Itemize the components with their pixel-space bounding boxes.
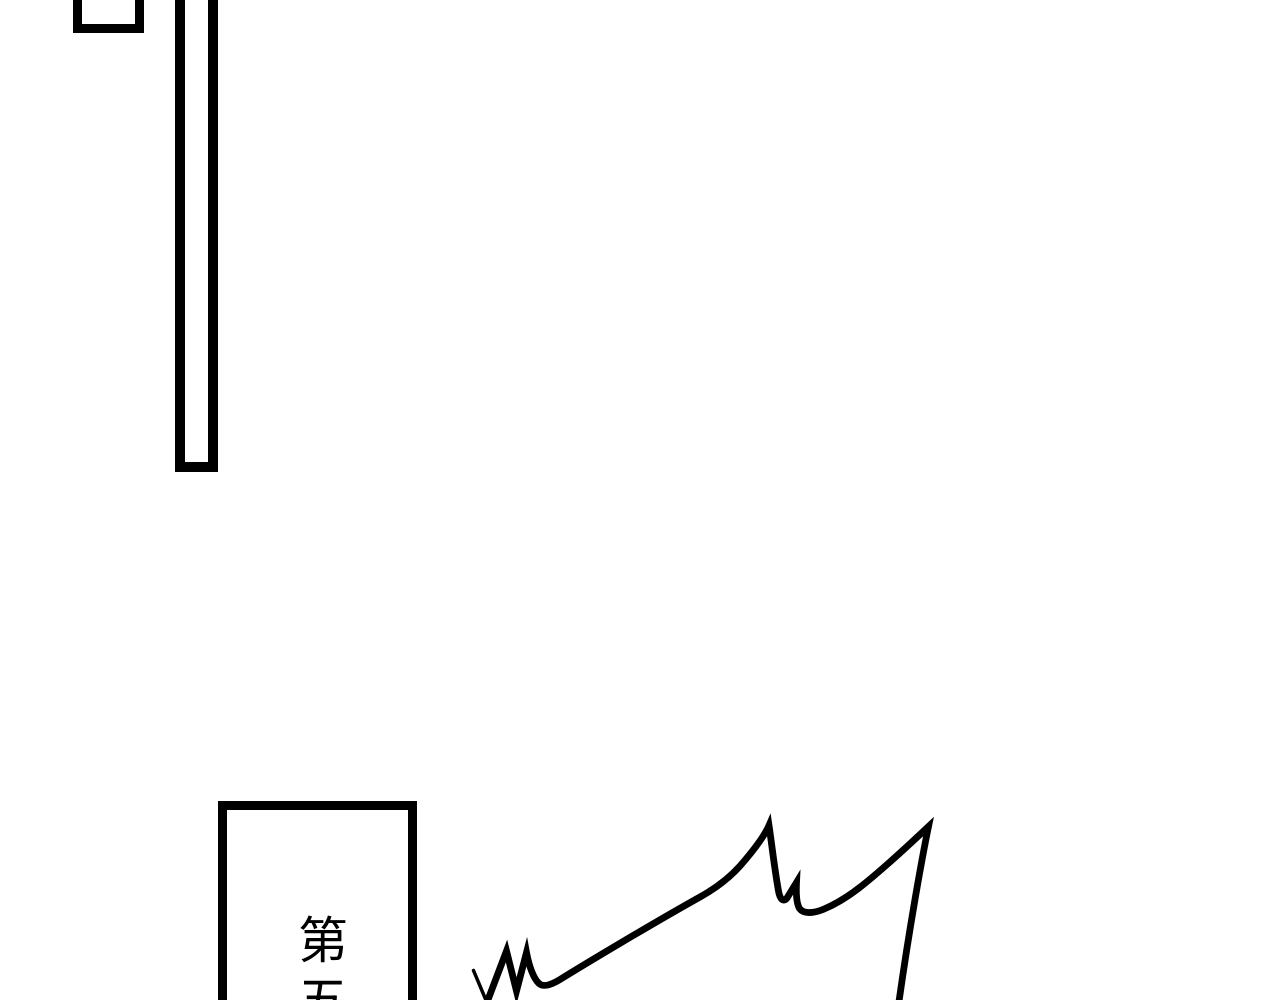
panel-border-vertical-bar [175,0,218,472]
comic-page: 第五 [0,0,1280,1000]
spiky-hair-line-art [440,798,1000,1000]
chapter-title-text: 第五 [294,914,344,1000]
chapter-title-box: 第五 [218,801,417,1000]
hair-strand-path [474,971,489,1000]
hair-outline-path [486,826,929,1000]
panel-border-top-left [73,0,144,33]
